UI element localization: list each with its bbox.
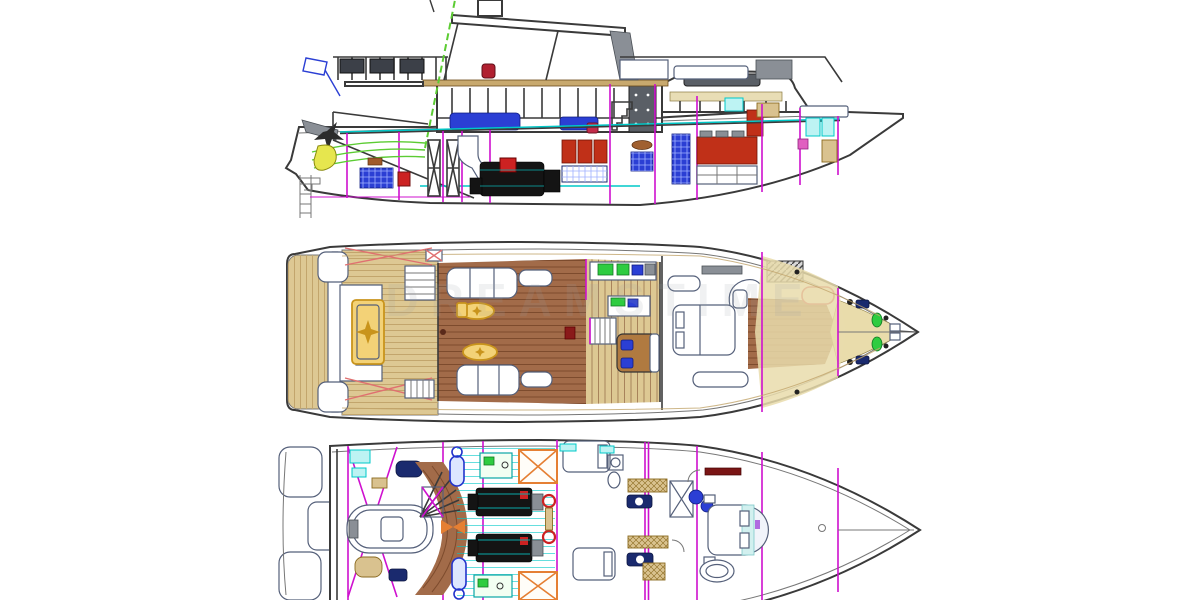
mast-base — [478, 0, 502, 16]
vip-ottoman — [700, 560, 734, 582]
tv-cabinet — [702, 266, 742, 274]
dinette — [617, 334, 659, 372]
generator-fwd — [480, 453, 512, 478]
engine-room — [441, 447, 557, 600]
flybridge-seatback-1 — [340, 59, 364, 73]
foredeck-seat-profile — [800, 106, 848, 117]
generator-aft — [474, 575, 512, 597]
antenna-whip — [430, 0, 434, 12]
crew-toilet — [608, 472, 620, 488]
stern-flag — [303, 58, 340, 96]
aft-deck-lounge — [340, 285, 384, 381]
pump-box-red — [398, 172, 410, 186]
starboard-engine — [468, 534, 543, 562]
transom-corner-seat-stbd — [318, 382, 348, 412]
tender-boat — [347, 505, 433, 553]
helm-console-wood — [757, 103, 779, 117]
side-elevation-view — [286, 0, 903, 218]
bow-cleat-port — [872, 313, 882, 327]
cabin-desk — [693, 372, 748, 387]
vip-accent — [755, 520, 760, 529]
flybridge-console — [620, 60, 668, 79]
aft-bulwark — [333, 112, 428, 127]
flybridge-seatback-3 — [400, 59, 424, 73]
lower-deck-plan-view — [279, 440, 920, 600]
yacht-three-view-drawing: DREAMSTIME — [0, 0, 1200, 600]
vanity-stool-1 — [689, 490, 703, 504]
port-engine — [468, 488, 543, 516]
hardtop-mid-support — [546, 31, 558, 80]
crew-cabinets-red — [562, 140, 607, 182]
helm-instrument — [725, 98, 743, 111]
salon-post — [440, 329, 446, 335]
main-deck-plan-view — [287, 242, 918, 422]
pantry-door — [565, 327, 575, 339]
vip-tv-cabinet — [705, 468, 741, 475]
fuel-tank-fwd — [519, 450, 557, 483]
garage-bench — [355, 557, 382, 577]
galley-lower-cabinets — [697, 131, 757, 184]
locker-shelf — [368, 158, 382, 165]
fuel-tank-aft — [519, 572, 557, 600]
helm-stool — [587, 123, 598, 133]
flybridge-deck-trim — [423, 80, 668, 86]
flybridge-helm-seat — [482, 64, 495, 78]
yacht-blueprint-canvas: DREAMSTIME — [0, 0, 1200, 600]
bow-cleat-stbd — [872, 337, 882, 351]
hardtop — [452, 15, 625, 36]
transom-corner-seat-port — [318, 252, 348, 282]
flybridge-seatback-2 — [370, 59, 394, 73]
hardtop-front-support — [444, 23, 458, 80]
flybridge-wetbar — [756, 60, 792, 79]
aft-awning — [345, 82, 423, 86]
watermark-text: DREAMSTIME — [385, 274, 814, 326]
flybridge-sunpad — [674, 66, 748, 79]
table-profile — [632, 141, 652, 150]
